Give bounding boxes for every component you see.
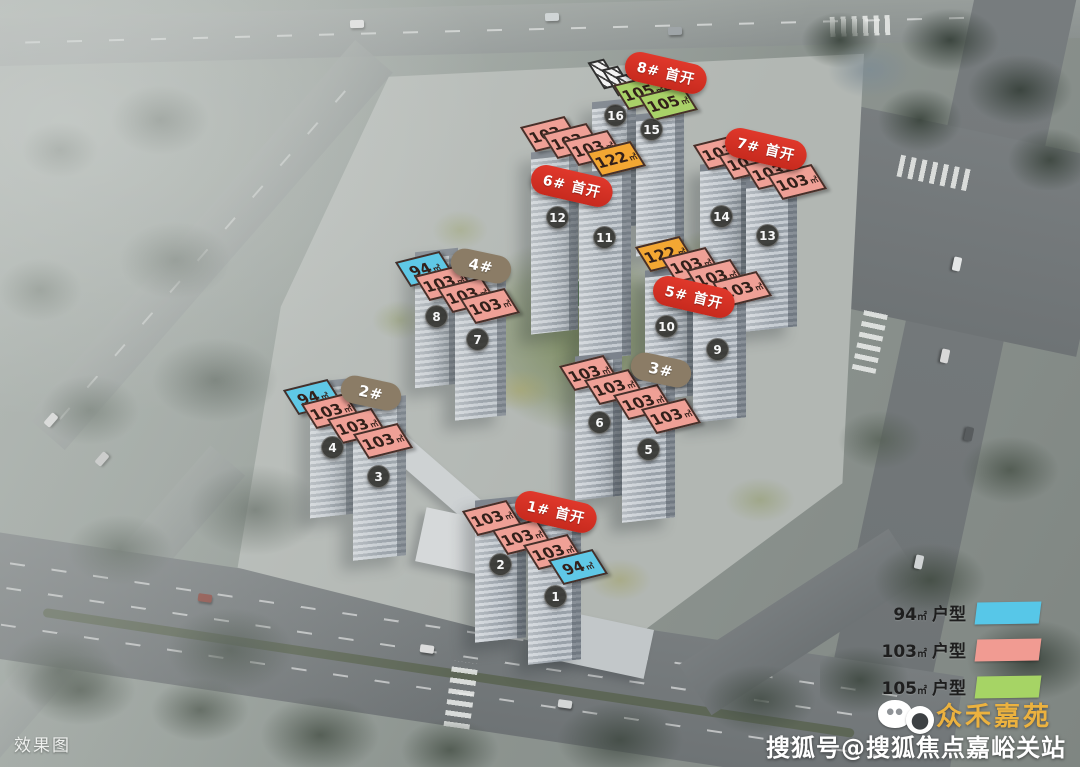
building-number-7: 7 bbox=[466, 328, 489, 351]
unit-tag-area: 103 bbox=[465, 295, 505, 319]
building-number-5: 5 bbox=[637, 438, 660, 461]
legend-row-94: 94㎡户型 bbox=[893, 600, 1040, 625]
unit-tag-area: 105 bbox=[643, 92, 683, 116]
legend-area-value: 94 bbox=[893, 605, 917, 625]
legend-suffix: 户型 bbox=[932, 642, 966, 662]
rendering-disclaimer-label: 效果图 bbox=[14, 731, 71, 756]
unit-tag-area: 122 bbox=[591, 148, 631, 172]
legend-suffix: 户型 bbox=[932, 605, 966, 625]
building-number-9: 9 bbox=[706, 338, 729, 361]
building-number-16: 16 bbox=[604, 104, 627, 127]
legend-swatch-103 bbox=[975, 638, 1042, 661]
building-number-4: 4 bbox=[321, 436, 344, 459]
unit-tag-area: 103 bbox=[646, 405, 686, 429]
building-number-8: 8 bbox=[425, 305, 448, 328]
building-number-1: 1 bbox=[544, 585, 567, 608]
legend-sqm-unit: ㎡ bbox=[917, 612, 927, 623]
aerial-site-rendering: 8# 首开7# 首开6# 首开5# 首开1# 首开4#2#3#105㎡105㎡1… bbox=[0, 0, 1080, 767]
building-number-14: 14 bbox=[710, 205, 733, 228]
legend-row-103: 103㎡户型 bbox=[882, 637, 1041, 662]
building-number-3: 3 bbox=[367, 465, 390, 488]
watermark: 众禾嘉苑 搜狐号@搜狐焦点嘉峪关站 bbox=[780, 692, 1080, 767]
watermark-source-account: 搜狐号@搜狐焦点嘉峪关站 bbox=[766, 728, 1066, 763]
legend-area-value: 103 bbox=[882, 642, 918, 662]
legend-sqm-unit: ㎡ bbox=[917, 649, 927, 660]
building-number-2: 2 bbox=[489, 553, 512, 576]
legend-label-103: 103㎡户型 bbox=[882, 637, 967, 662]
building-number-12: 12 bbox=[546, 206, 569, 229]
building-number-10: 10 bbox=[655, 315, 678, 338]
unit-tag-area: 103 bbox=[772, 171, 812, 195]
legend-label-94: 94㎡户型 bbox=[893, 600, 966, 625]
building-number-15: 15 bbox=[640, 118, 663, 141]
unit-tag-area: 103 bbox=[358, 430, 398, 454]
building-number-6: 6 bbox=[588, 411, 611, 434]
building-number-13: 13 bbox=[756, 224, 779, 247]
unit-tag-area: 94 bbox=[558, 558, 588, 579]
legend-swatch-94 bbox=[975, 601, 1042, 624]
building-number-11: 11 bbox=[593, 226, 616, 249]
